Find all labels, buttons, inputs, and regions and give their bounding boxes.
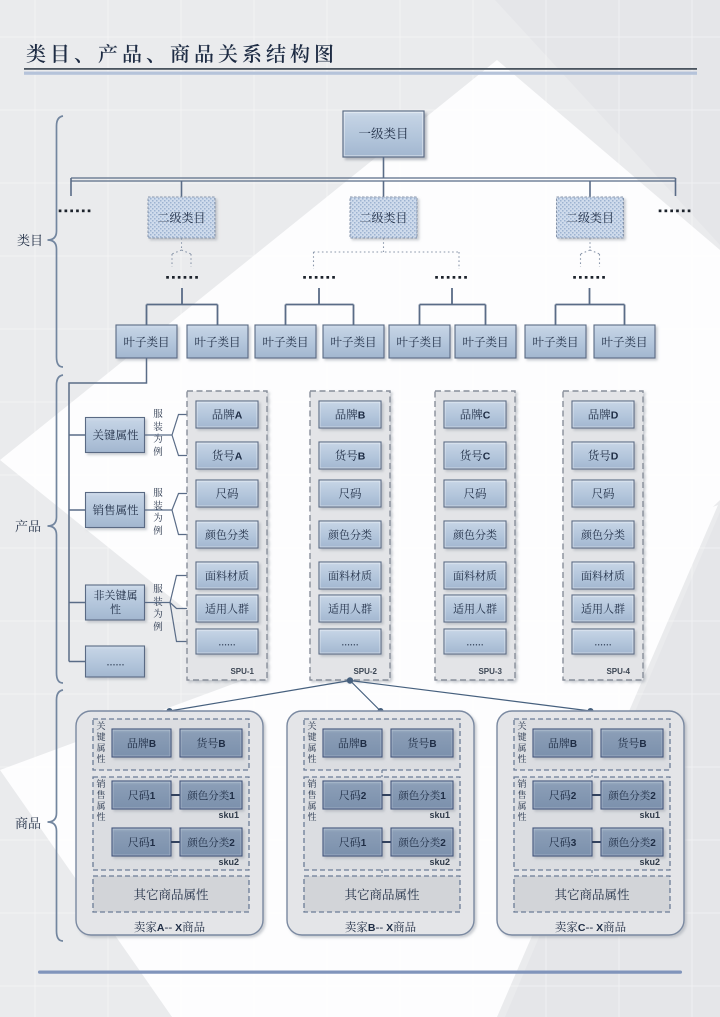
svg-text:货号B: 货号B [335, 449, 366, 463]
svg-text:颜色分类2: 颜色分类2 [608, 789, 656, 802]
svg-text:其它商品属性: 其它商品属性 [133, 887, 209, 902]
svg-text:例: 例 [153, 621, 163, 633]
svg-text:服: 服 [153, 584, 163, 595]
svg-text:性: 性 [517, 811, 526, 822]
svg-text:货号A: 货号A [212, 449, 243, 463]
svg-text:关: 关 [517, 720, 526, 731]
svg-text:性: 性 [96, 811, 105, 822]
svg-text:尺码1: 尺码1 [128, 789, 156, 802]
svg-text:货号D: 货号D [588, 449, 619, 463]
svg-text:sku1: sku1 [429, 810, 450, 820]
svg-text:颜色分类: 颜色分类 [581, 528, 625, 542]
svg-text:......: ...... [218, 637, 235, 649]
svg-text:......: ...... [466, 637, 483, 649]
svg-text:属: 属 [307, 801, 316, 811]
svg-text:SPU-1: SPU-1 [230, 667, 254, 676]
svg-text:属: 属 [96, 743, 105, 753]
svg-text:服: 服 [153, 488, 163, 499]
svg-text:叶子类目: 叶子类目 [397, 335, 443, 349]
svg-text:属: 属 [96, 801, 105, 811]
svg-text:性: 性 [96, 753, 105, 764]
svg-text:货号B: 货号B [617, 736, 646, 750]
svg-text:尺码2: 尺码2 [339, 789, 367, 802]
svg-text:颜色分类: 颜色分类 [328, 528, 372, 542]
svg-text:装: 装 [153, 421, 163, 433]
svg-text:叶子类目: 叶子类目 [331, 335, 377, 349]
svg-text:尺码3: 尺码3 [549, 836, 577, 849]
svg-text:sku1: sku1 [639, 810, 660, 820]
svg-text:关键属性: 关键属性 [93, 428, 139, 442]
svg-text:销: 销 [96, 778, 105, 789]
svg-text:颜色分类2: 颜色分类2 [608, 836, 656, 849]
svg-text:性: 性 [110, 602, 121, 616]
svg-text:类目、产品、商品关系结构图: 类目、产品、商品关系结构图 [26, 43, 338, 66]
svg-text:尺码1: 尺码1 [128, 836, 156, 849]
svg-text:颜色分类1: 颜色分类1 [187, 789, 235, 802]
svg-text:二级类目: 二级类目 [566, 210, 614, 225]
svg-text:叶子类目: 叶子类目 [124, 335, 170, 349]
svg-text:叶子类目: 叶子类目 [263, 335, 309, 349]
svg-text:卖家B-- X商品: 卖家B-- X商品 [345, 920, 416, 934]
svg-text:货号C: 货号C [460, 449, 491, 463]
svg-text:键: 键 [517, 731, 526, 742]
svg-text:键: 键 [307, 731, 316, 742]
svg-text:sku2: sku2 [639, 857, 660, 867]
svg-text:......: ...... [341, 637, 358, 649]
svg-text:销: 销 [307, 778, 316, 789]
svg-text:sku2: sku2 [429, 857, 450, 867]
svg-text:面料材质: 面料材质 [453, 569, 497, 583]
svg-text:性: 性 [307, 753, 316, 764]
svg-text:颜色分类: 颜色分类 [453, 528, 497, 542]
svg-text:二级类目: 二级类目 [157, 210, 205, 225]
svg-text:叶子类目: 叶子类目 [195, 335, 241, 349]
svg-text:颜色分类1: 颜色分类1 [398, 789, 446, 802]
svg-text:类目: 类目 [17, 233, 43, 248]
svg-text:尺码: 尺码 [339, 488, 362, 501]
svg-text:属: 属 [307, 743, 316, 753]
svg-text:颜色分类: 颜色分类 [205, 528, 249, 542]
svg-text:二级类目: 二级类目 [359, 210, 407, 225]
svg-text:其它商品属性: 其它商品属性 [554, 887, 630, 902]
svg-text:尺码1: 尺码1 [339, 836, 367, 849]
svg-text:例: 例 [153, 525, 163, 537]
svg-text:为: 为 [153, 608, 163, 620]
svg-text:面料材质: 面料材质 [328, 569, 372, 583]
svg-text:售: 售 [517, 789, 526, 800]
svg-text:颜色分类2: 颜色分类2 [398, 836, 446, 849]
svg-text:尺码2: 尺码2 [549, 789, 577, 802]
svg-text:......: ...... [594, 637, 611, 649]
svg-text:品牌B: 品牌B [548, 736, 577, 750]
svg-text:销售属性: 销售属性 [93, 503, 139, 517]
svg-text:键: 键 [96, 731, 105, 742]
svg-text:尺码: 尺码 [216, 488, 239, 501]
svg-text:SPU-2: SPU-2 [353, 667, 377, 676]
svg-text:适用人群: 适用人群 [205, 603, 249, 616]
svg-text:适用人群: 适用人群 [581, 603, 625, 616]
svg-text:品牌B: 品牌B [338, 736, 367, 750]
svg-text:面料材质: 面料材质 [205, 569, 249, 583]
svg-text:关: 关 [96, 720, 105, 731]
svg-text:品牌B: 品牌B [335, 408, 366, 422]
svg-text:例: 例 [153, 446, 163, 458]
svg-text:关: 关 [307, 720, 316, 731]
svg-text:SPU-4: SPU-4 [606, 667, 630, 676]
svg-text:sku2: sku2 [218, 857, 239, 867]
svg-text:颜色分类2: 颜色分类2 [187, 836, 235, 849]
svg-text:货号B: 货号B [196, 736, 225, 750]
svg-text:尺码: 尺码 [592, 488, 615, 501]
svg-text:商品: 商品 [15, 816, 41, 831]
svg-text:售: 售 [307, 789, 316, 800]
svg-text:品牌D: 品牌D [588, 408, 619, 422]
svg-text:品牌A: 品牌A [212, 408, 243, 422]
svg-text:叶子类目: 叶子类目 [463, 335, 509, 349]
svg-text:......: ...... [107, 655, 125, 669]
svg-text:卖家C-- X商品: 卖家C-- X商品 [555, 920, 626, 934]
svg-text:品牌C: 品牌C [460, 408, 491, 422]
svg-text:销: 销 [517, 778, 526, 789]
svg-text:叶子类目: 叶子类目 [602, 335, 648, 349]
svg-text:服: 服 [153, 409, 163, 420]
svg-text:属: 属 [517, 743, 526, 753]
svg-text:适用人群: 适用人群 [453, 603, 497, 616]
svg-text:属: 属 [517, 801, 526, 811]
svg-text:尺码: 尺码 [464, 488, 487, 501]
svg-text:非关键属: 非关键属 [94, 588, 138, 602]
svg-text:面料材质: 面料材质 [581, 569, 625, 583]
svg-text:性: 性 [517, 753, 526, 764]
svg-text:适用人群: 适用人群 [328, 603, 372, 616]
svg-text:其它商品属性: 其它商品属性 [344, 887, 420, 902]
svg-text:SPU-3: SPU-3 [478, 667, 502, 676]
svg-text:叶子类目: 叶子类目 [533, 335, 579, 349]
svg-text:性: 性 [307, 811, 316, 822]
svg-text:一级类目: 一级类目 [358, 126, 408, 141]
svg-text:为: 为 [153, 512, 163, 524]
svg-text:货号B: 货号B [407, 736, 436, 750]
svg-text:售: 售 [96, 789, 105, 800]
svg-text:卖家A-- X商品: 卖家A-- X商品 [134, 920, 205, 934]
svg-text:sku1: sku1 [218, 810, 239, 820]
svg-text:产品: 产品 [15, 519, 41, 534]
svg-text:品牌B: 品牌B [127, 736, 156, 750]
